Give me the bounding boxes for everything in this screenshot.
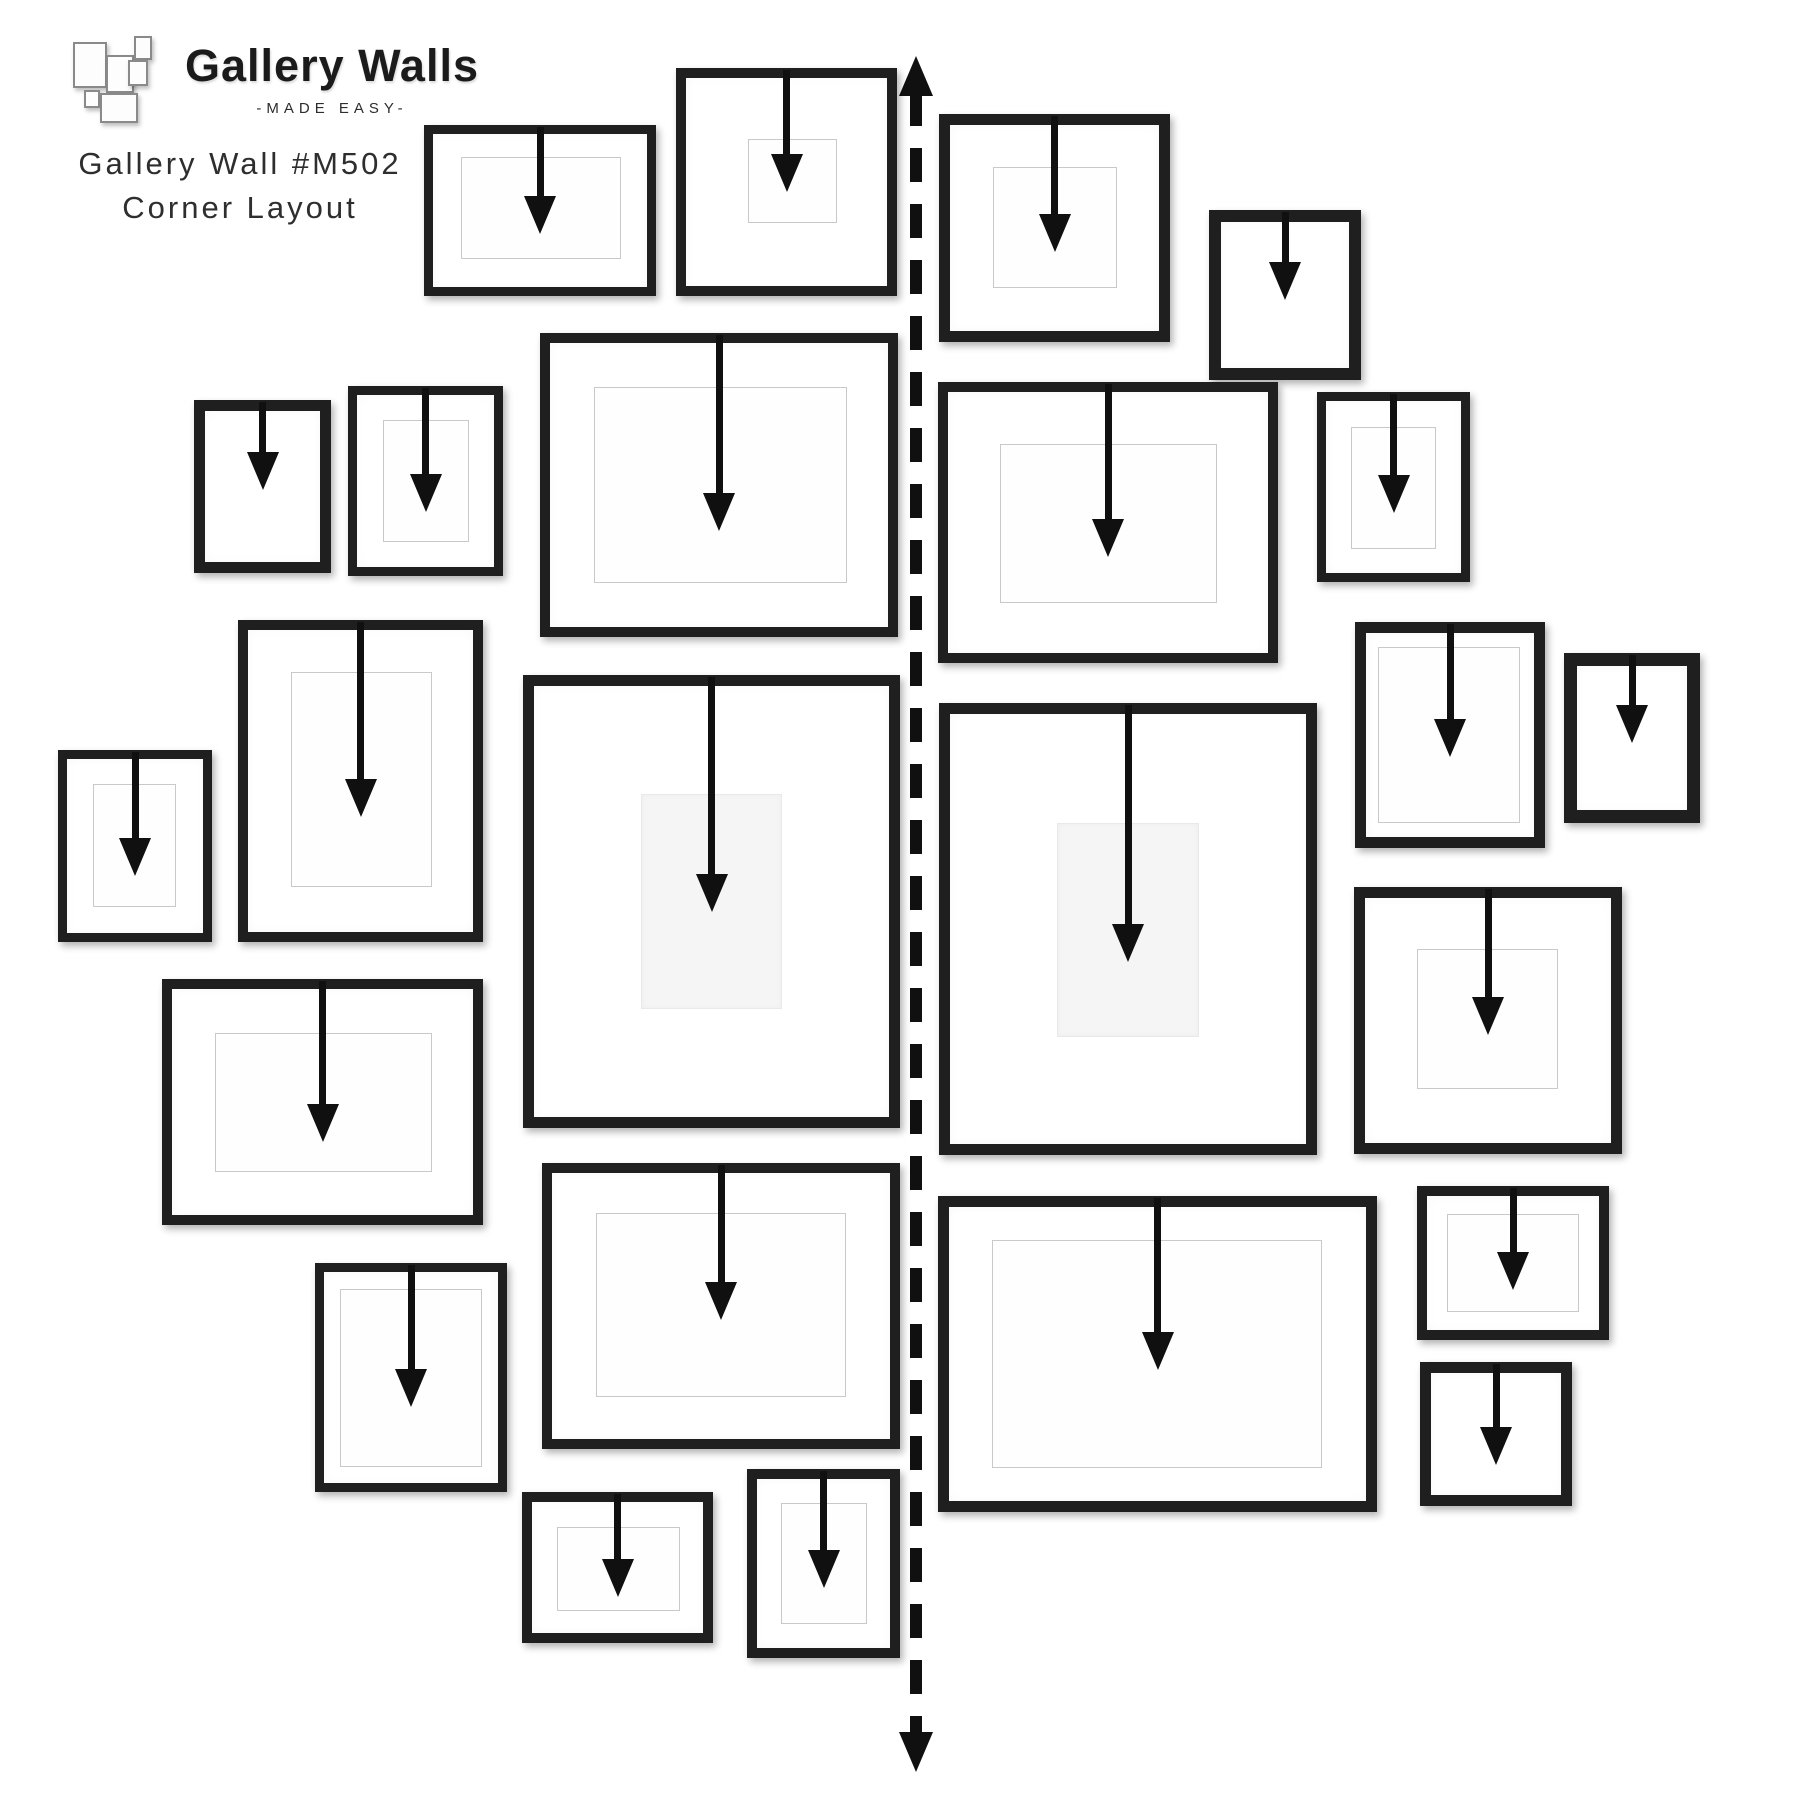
logo-frame-mark bbox=[73, 42, 107, 88]
logo-frame-mark bbox=[84, 90, 100, 108]
hang-arrow-stem bbox=[1282, 212, 1289, 268]
gallery-wall-layout-poster: Gallery Walls -MADE EASY- Gallery Wall #… bbox=[0, 0, 1800, 1800]
hang-arrow-down-icon bbox=[1269, 262, 1301, 300]
brand-name: Gallery Walls bbox=[162, 40, 502, 92]
hang-arrow-down-icon bbox=[307, 1104, 339, 1142]
hang-arrow-stem bbox=[1125, 705, 1132, 930]
hang-arrow-stem bbox=[708, 677, 715, 880]
hang-arrow-down-icon bbox=[808, 1550, 840, 1588]
logo-frame-mark bbox=[134, 36, 152, 60]
hang-arrow-down-icon bbox=[410, 474, 442, 512]
hang-arrow-stem bbox=[1051, 116, 1058, 220]
hang-arrow-down-icon bbox=[1039, 214, 1071, 252]
layout-subtitle: Corner Layout bbox=[20, 190, 460, 226]
hang-arrow-stem bbox=[1447, 624, 1454, 725]
hang-arrow-stem bbox=[408, 1265, 415, 1375]
hang-arrow-down-icon bbox=[345, 779, 377, 817]
hang-arrow-stem bbox=[820, 1471, 827, 1556]
wall-id-title: Gallery Wall #M502 bbox=[20, 146, 460, 182]
hang-arrow-stem bbox=[259, 402, 266, 458]
gallery-walls-logo-icon bbox=[68, 34, 160, 122]
hang-arrow-stem bbox=[319, 981, 326, 1110]
hang-arrow-down-icon bbox=[771, 154, 803, 192]
hang-arrow-stem bbox=[132, 752, 139, 844]
hang-arrow-down-icon bbox=[1616, 705, 1648, 743]
hang-arrow-stem bbox=[1105, 384, 1112, 525]
hang-arrow-stem bbox=[1154, 1198, 1161, 1338]
hang-arrow-stem bbox=[422, 388, 429, 480]
hang-arrow-stem bbox=[614, 1494, 621, 1565]
hang-arrow-down-icon bbox=[1472, 997, 1504, 1035]
hang-arrow-down-icon bbox=[1480, 1427, 1512, 1465]
hang-arrow-stem bbox=[1390, 394, 1397, 481]
hang-arrow-stem bbox=[1493, 1364, 1500, 1433]
hang-arrow-down-icon bbox=[705, 1282, 737, 1320]
logo-frame-mark bbox=[128, 60, 148, 86]
divider-arrow-up-icon bbox=[899, 56, 933, 96]
hang-arrow-down-icon bbox=[395, 1369, 427, 1407]
brand-tagline: -MADE EASY- bbox=[162, 100, 502, 117]
hang-arrow-down-icon bbox=[696, 874, 728, 912]
divider-arrow-down-icon bbox=[899, 1732, 933, 1772]
hang-arrow-down-icon bbox=[602, 1559, 634, 1597]
hang-arrow-down-icon bbox=[1497, 1252, 1529, 1290]
hang-arrow-down-icon bbox=[1142, 1332, 1174, 1370]
hang-arrow-down-icon bbox=[1092, 519, 1124, 557]
hang-arrow-stem bbox=[718, 1165, 725, 1288]
hang-arrow-stem bbox=[1629, 655, 1636, 711]
hang-arrow-stem bbox=[357, 622, 364, 785]
hang-arrow-stem bbox=[1510, 1188, 1517, 1258]
hang-arrow-down-icon bbox=[247, 452, 279, 490]
logo-frame-mark bbox=[100, 93, 138, 123]
hang-arrow-down-icon bbox=[703, 493, 735, 531]
hang-arrow-down-icon bbox=[119, 838, 151, 876]
hang-arrow-stem bbox=[1485, 889, 1492, 1003]
hang-arrow-down-icon bbox=[524, 196, 556, 234]
hang-arrow-down-icon bbox=[1378, 475, 1410, 513]
hang-arrow-down-icon bbox=[1434, 719, 1466, 757]
divider-dashes bbox=[910, 92, 922, 1736]
hang-arrow-stem bbox=[537, 127, 544, 202]
hang-arrow-stem bbox=[716, 335, 723, 499]
hang-arrow-stem bbox=[783, 70, 790, 160]
hang-arrow-down-icon bbox=[1112, 924, 1144, 962]
